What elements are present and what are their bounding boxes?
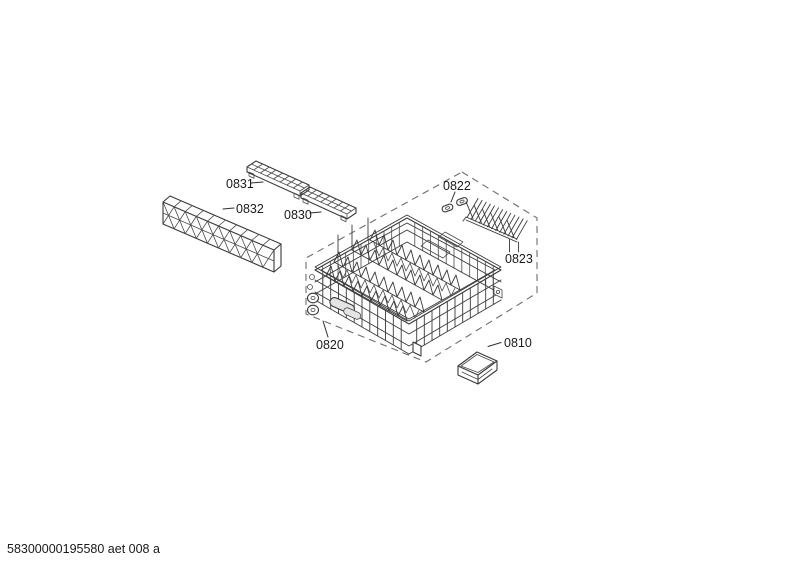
part-label-0832: 0832 <box>236 202 264 216</box>
tine-row-1-cross <box>374 243 455 296</box>
part-label-0820: 0820 <box>316 338 344 352</box>
part-0810-drawing <box>458 352 497 384</box>
clip-body <box>441 203 453 212</box>
corner-knob-2 <box>308 285 313 290</box>
part-label-0822: 0822 <box>443 179 471 193</box>
corner-knob-1 <box>310 275 315 280</box>
strip-grid <box>252 164 305 188</box>
part-label-0830: 0830 <box>284 208 312 222</box>
tine-row-legs <box>510 240 519 253</box>
leader-0832 <box>223 208 234 209</box>
right-foot <box>494 286 502 298</box>
clip-left <box>441 203 453 212</box>
wheel-lower <box>308 305 319 315</box>
front-foot <box>413 342 421 356</box>
part-label-0823: 0823 <box>505 252 533 266</box>
clip-right <box>456 197 468 206</box>
tine-base-rail <box>463 217 517 242</box>
parts-diagram-page: 0831 0832 0830 0822 0823 0820 0810 58300… <box>0 0 800 566</box>
document-code: 58300000195580 aet 008 a <box>7 542 160 556</box>
strip-grid <box>306 190 352 211</box>
wall-front-right-verticals <box>417 275 494 350</box>
wheel-upper <box>308 293 319 303</box>
part-0820-drawing <box>308 215 503 356</box>
clip-body <box>456 197 468 206</box>
exploded-parts-diagram: 0831 0832 0830 0822 0823 0820 0810 58300… <box>0 0 800 566</box>
wall-bands <box>315 230 501 354</box>
part-0822-drawing <box>441 197 468 213</box>
leader-0820 <box>323 321 328 337</box>
tine-row-2 <box>352 240 442 300</box>
leader-0822 <box>451 192 455 202</box>
part-0831-drawing <box>247 161 309 199</box>
part-label-0831: 0831 <box>226 177 254 191</box>
part-label-0810: 0810 <box>504 336 532 350</box>
leader-0810 <box>488 343 501 347</box>
